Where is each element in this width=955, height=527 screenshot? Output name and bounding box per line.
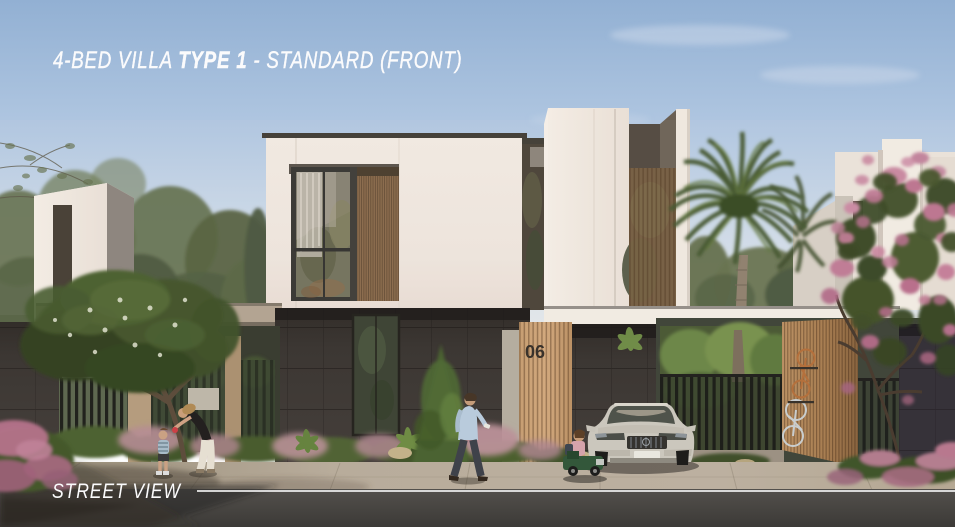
svg-text:06: 06 <box>525 342 545 362</box>
